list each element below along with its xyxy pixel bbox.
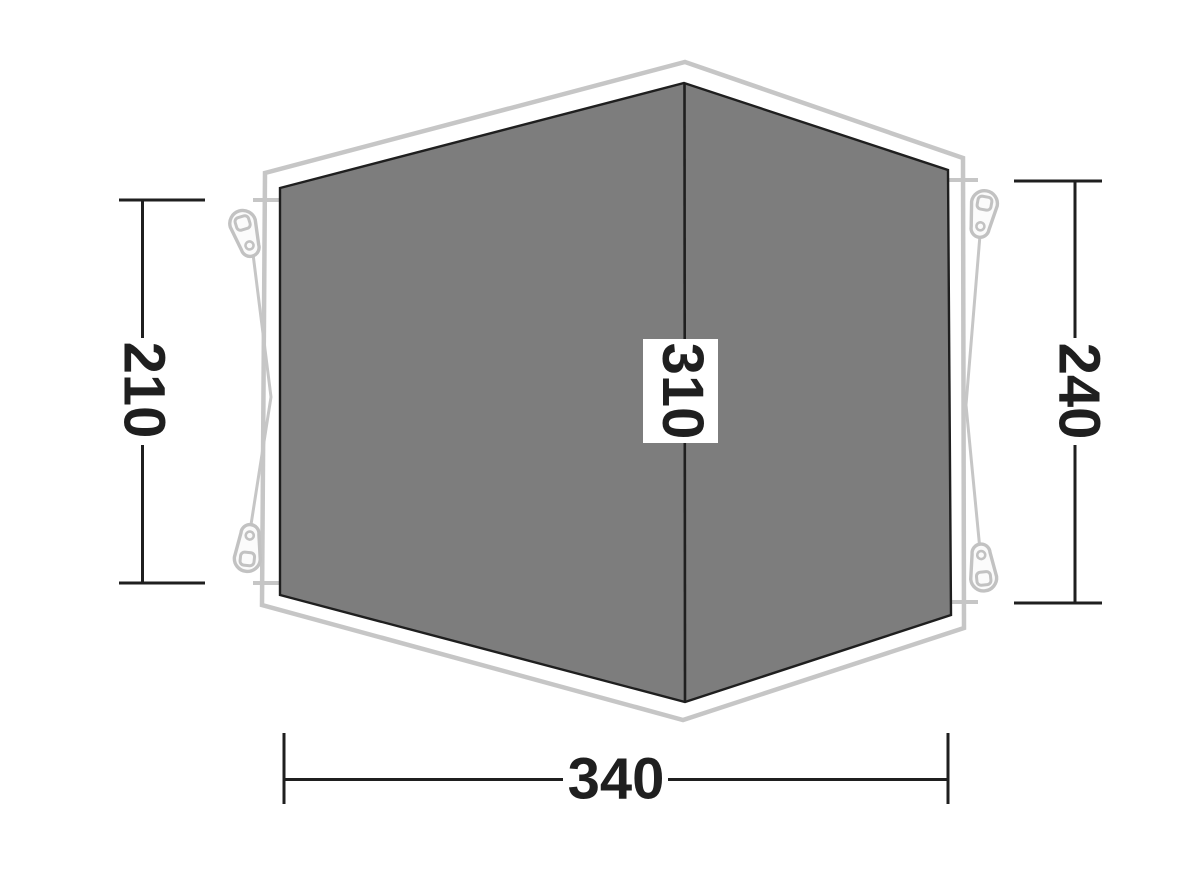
- peg-hole: [240, 552, 255, 566]
- tent-dimension-diagram: 210 240 340 310: [0, 0, 1200, 876]
- dimension-label-bottom: 340: [568, 747, 665, 812]
- peg-icon-bottom-left: [233, 523, 264, 572]
- peg-icon-top-left: [227, 207, 266, 260]
- right-guyline: [966, 235, 980, 550]
- peg-icon-top-right: [966, 189, 1000, 240]
- peg-hole: [976, 571, 991, 585]
- peg-dot: [976, 222, 985, 231]
- dimension-left-side: 210: [112, 200, 206, 583]
- dimension-ridge: 310: [643, 339, 718, 443]
- peg-dot: [977, 551, 986, 560]
- dimension-label-right: 240: [1047, 343, 1112, 440]
- left-guyline: [250, 246, 271, 531]
- dimension-right-side: 240: [1014, 181, 1112, 603]
- peg-dot: [245, 240, 255, 250]
- dimension-label-left: 210: [112, 342, 177, 439]
- groundsheet-floor: [280, 83, 951, 702]
- peg-dot: [245, 531, 254, 540]
- peg-hole: [976, 196, 992, 211]
- peg-hole: [234, 215, 251, 232]
- tent-footprint-canvas: 210 240 340 310: [0, 0, 1200, 876]
- dimension-label-ridge: 310: [650, 343, 715, 440]
- dimension-front-width: 340: [284, 733, 948, 812]
- peg-icon-bottom-right: [967, 543, 998, 592]
